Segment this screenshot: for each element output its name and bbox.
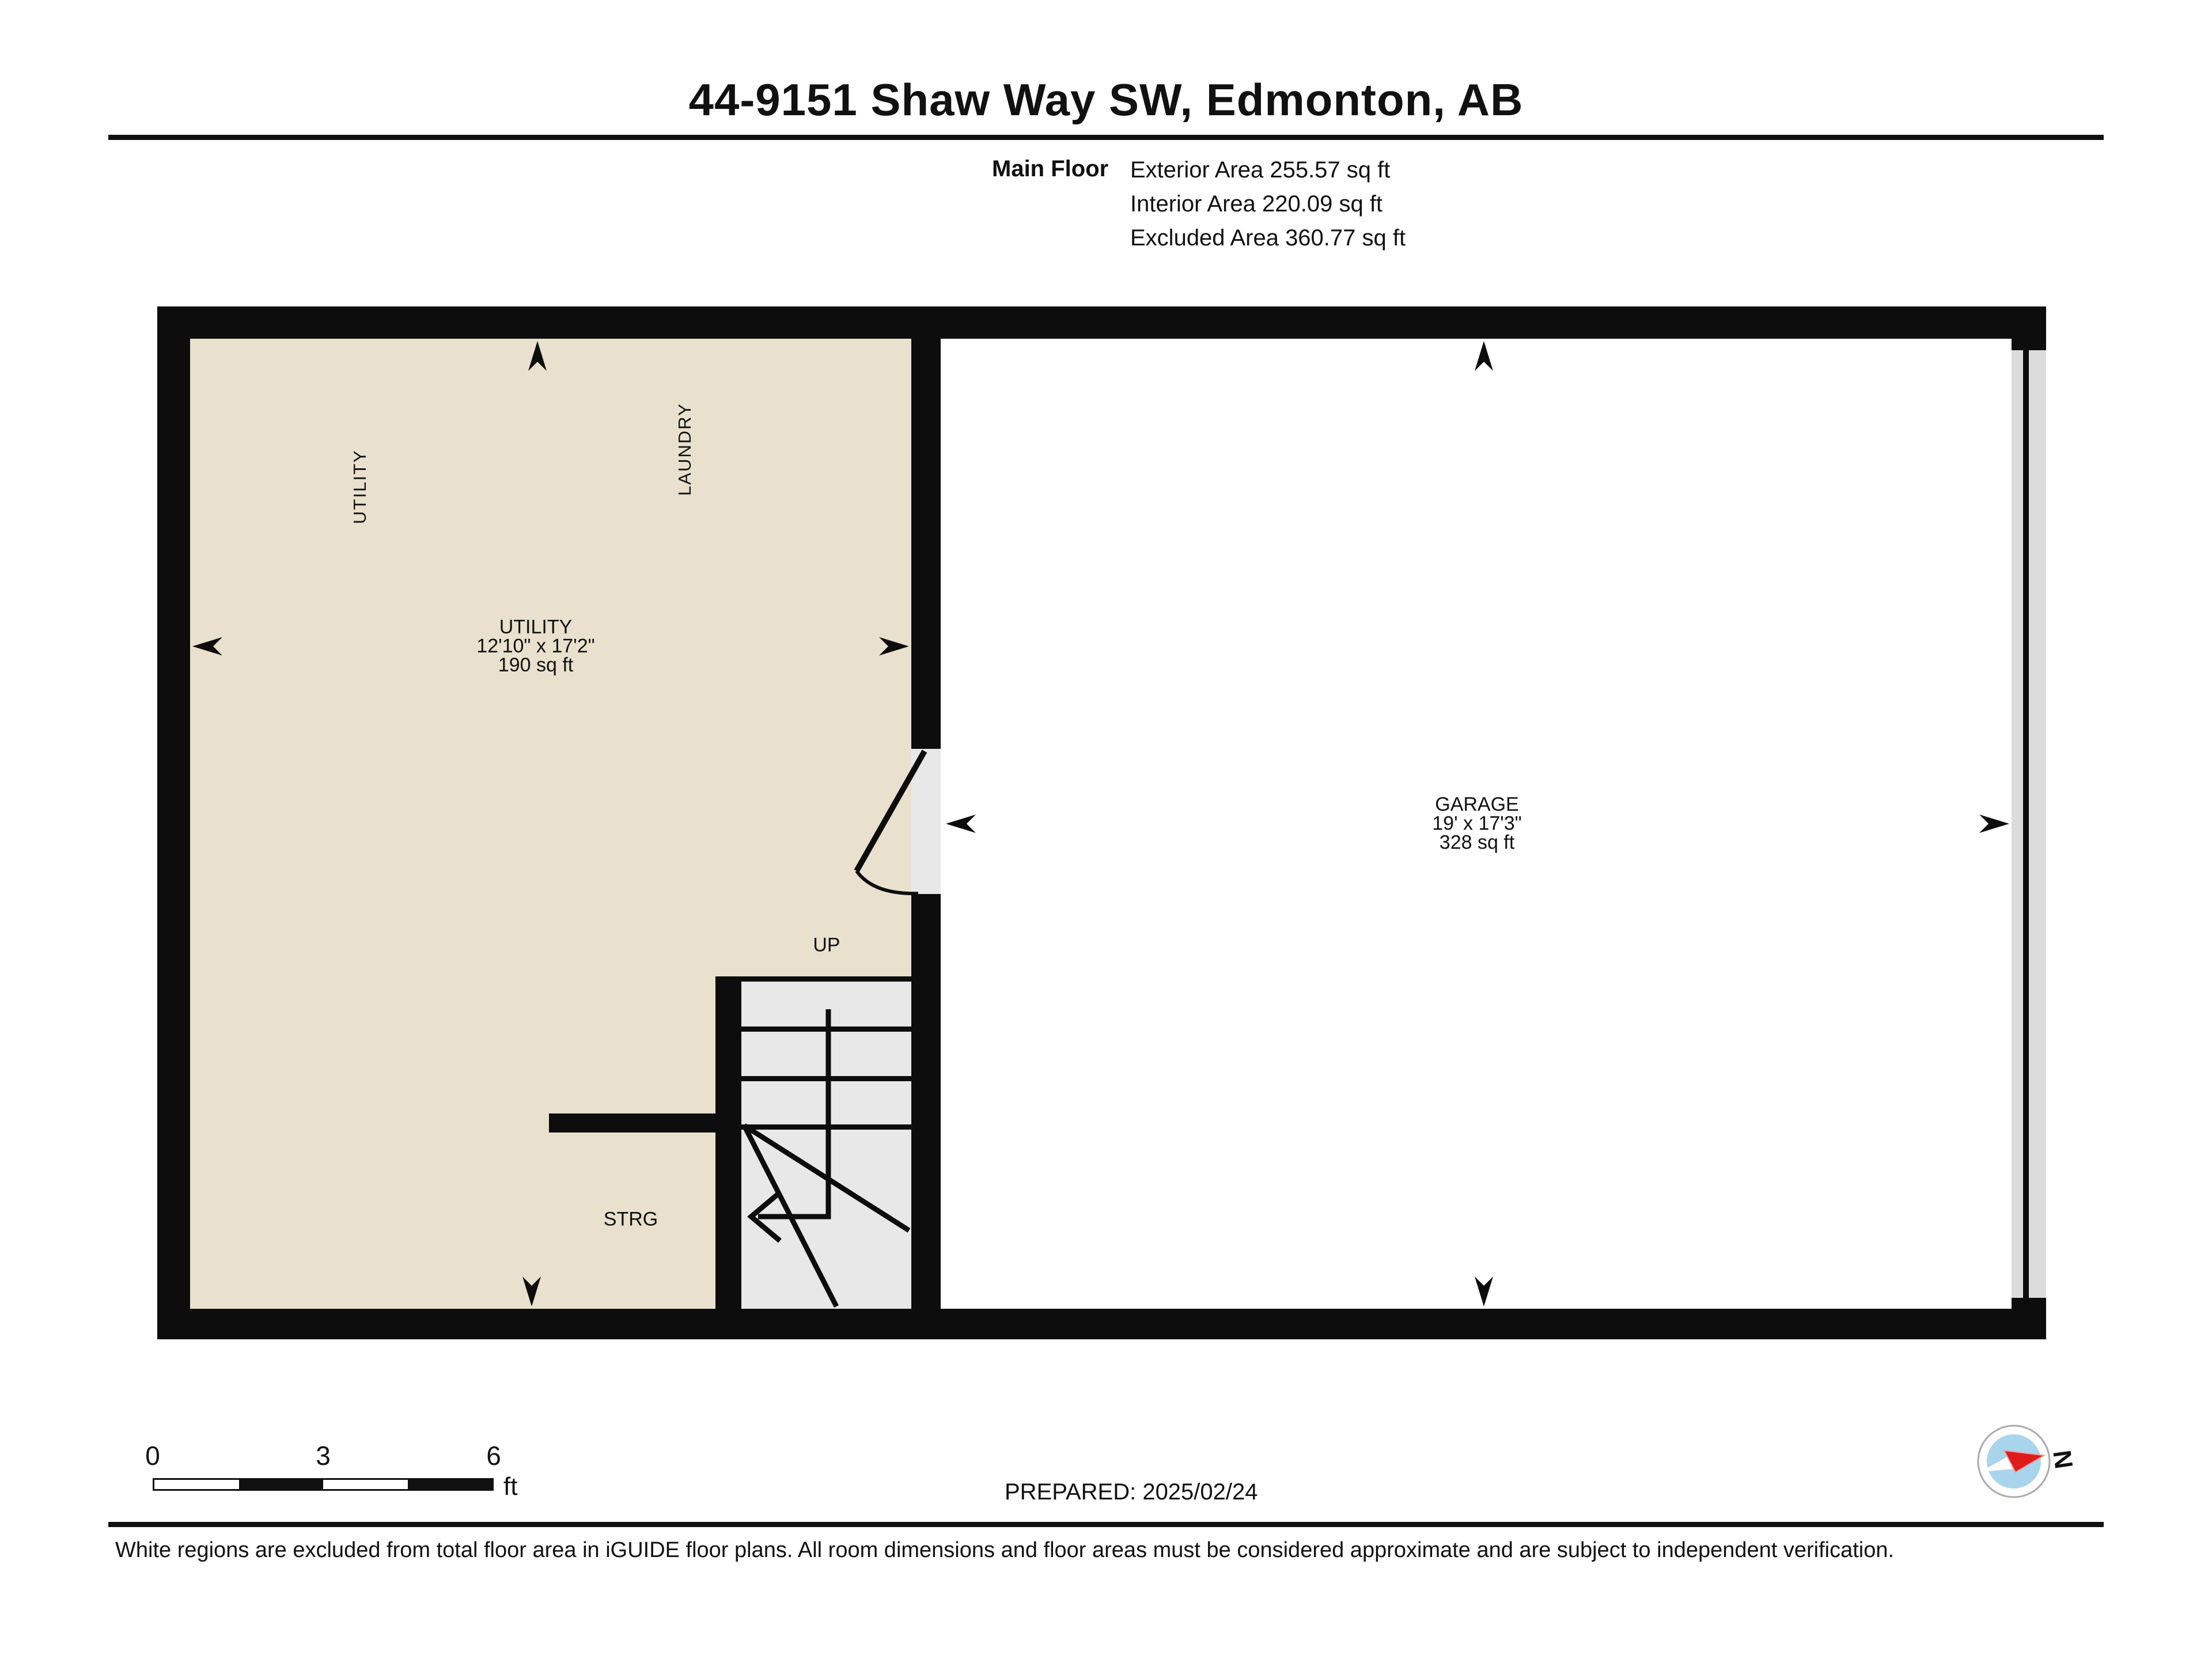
floor-plan-page: 44-9151 Shaw Way SW, Edmonton, AB Main F… xyxy=(0,0,2212,1659)
area-summary: Exterior Area 255.57 sq ft Interior Area… xyxy=(1130,153,1406,255)
garage-room-dimensions: 19' x 17'3" xyxy=(1432,815,1522,834)
scale-tick-3: 3 xyxy=(316,1440,331,1471)
scale-bar xyxy=(153,1478,494,1491)
floor-name-label: Main Floor xyxy=(992,156,1108,182)
stair-tread xyxy=(741,1027,911,1032)
utility-room-dimensions: 12'10" x 17'2" xyxy=(476,637,594,656)
stair-tread xyxy=(741,1076,911,1081)
exterior-area-line: Exterior Area 255.57 sq ft xyxy=(1130,153,1406,187)
compass-north-label: N xyxy=(2047,1449,2078,1471)
stairs-up-label: UP xyxy=(813,934,840,957)
utility-room-label: UTILITY 12'10" x 17'2" 190 sq ft xyxy=(476,618,594,675)
scale-bar-segment xyxy=(154,1480,239,1489)
header-divider xyxy=(108,135,2104,140)
interior-area-line: Interior Area 220.09 sq ft xyxy=(1130,187,1406,221)
storage-partition-wall xyxy=(549,1113,715,1132)
garage-door-line xyxy=(2023,350,2029,1298)
utility-wall-label: UTILITY xyxy=(350,449,370,524)
scale-unit-label: ft xyxy=(503,1472,517,1501)
page-title: 44-9151 Shaw Way SW, Edmonton, AB xyxy=(0,74,2212,126)
garage-room-label: GARAGE 19' x 17'3" 328 sq ft xyxy=(1432,796,1522,853)
storage-label: STRG xyxy=(604,1209,658,1231)
footer-divider xyxy=(108,1522,2104,1527)
scale-bar-segment xyxy=(239,1480,324,1489)
scale-bar-segment xyxy=(323,1480,408,1489)
floor-plan xyxy=(157,306,2046,1339)
garage-room-name: GARAGE xyxy=(1432,796,1522,815)
stairwell-wall xyxy=(715,976,741,1309)
compass-icon: N xyxy=(1959,1411,2103,1515)
prepared-date-label: PREPARED: 2025/02/24 xyxy=(1005,1479,1258,1505)
scale-tick-6: 6 xyxy=(486,1440,501,1471)
door-opening xyxy=(911,749,941,894)
stair-tread xyxy=(741,1124,911,1130)
scale-tick-0: 0 xyxy=(145,1440,160,1471)
laundry-wall-label: LAUNDRY xyxy=(675,403,695,496)
utility-room-sqft: 190 sq ft xyxy=(476,656,594,675)
scale-bar-segment xyxy=(408,1480,493,1489)
excluded-area-line: Excluded Area 360.77 sq ft xyxy=(1130,221,1406,255)
garage-room-sqft: 328 sq ft xyxy=(1432,834,1522,853)
garage-door xyxy=(2012,350,2046,1298)
disclaimer-text: White regions are excluded from total fl… xyxy=(115,1538,1894,1563)
utility-room-name: UTILITY xyxy=(476,618,594,637)
